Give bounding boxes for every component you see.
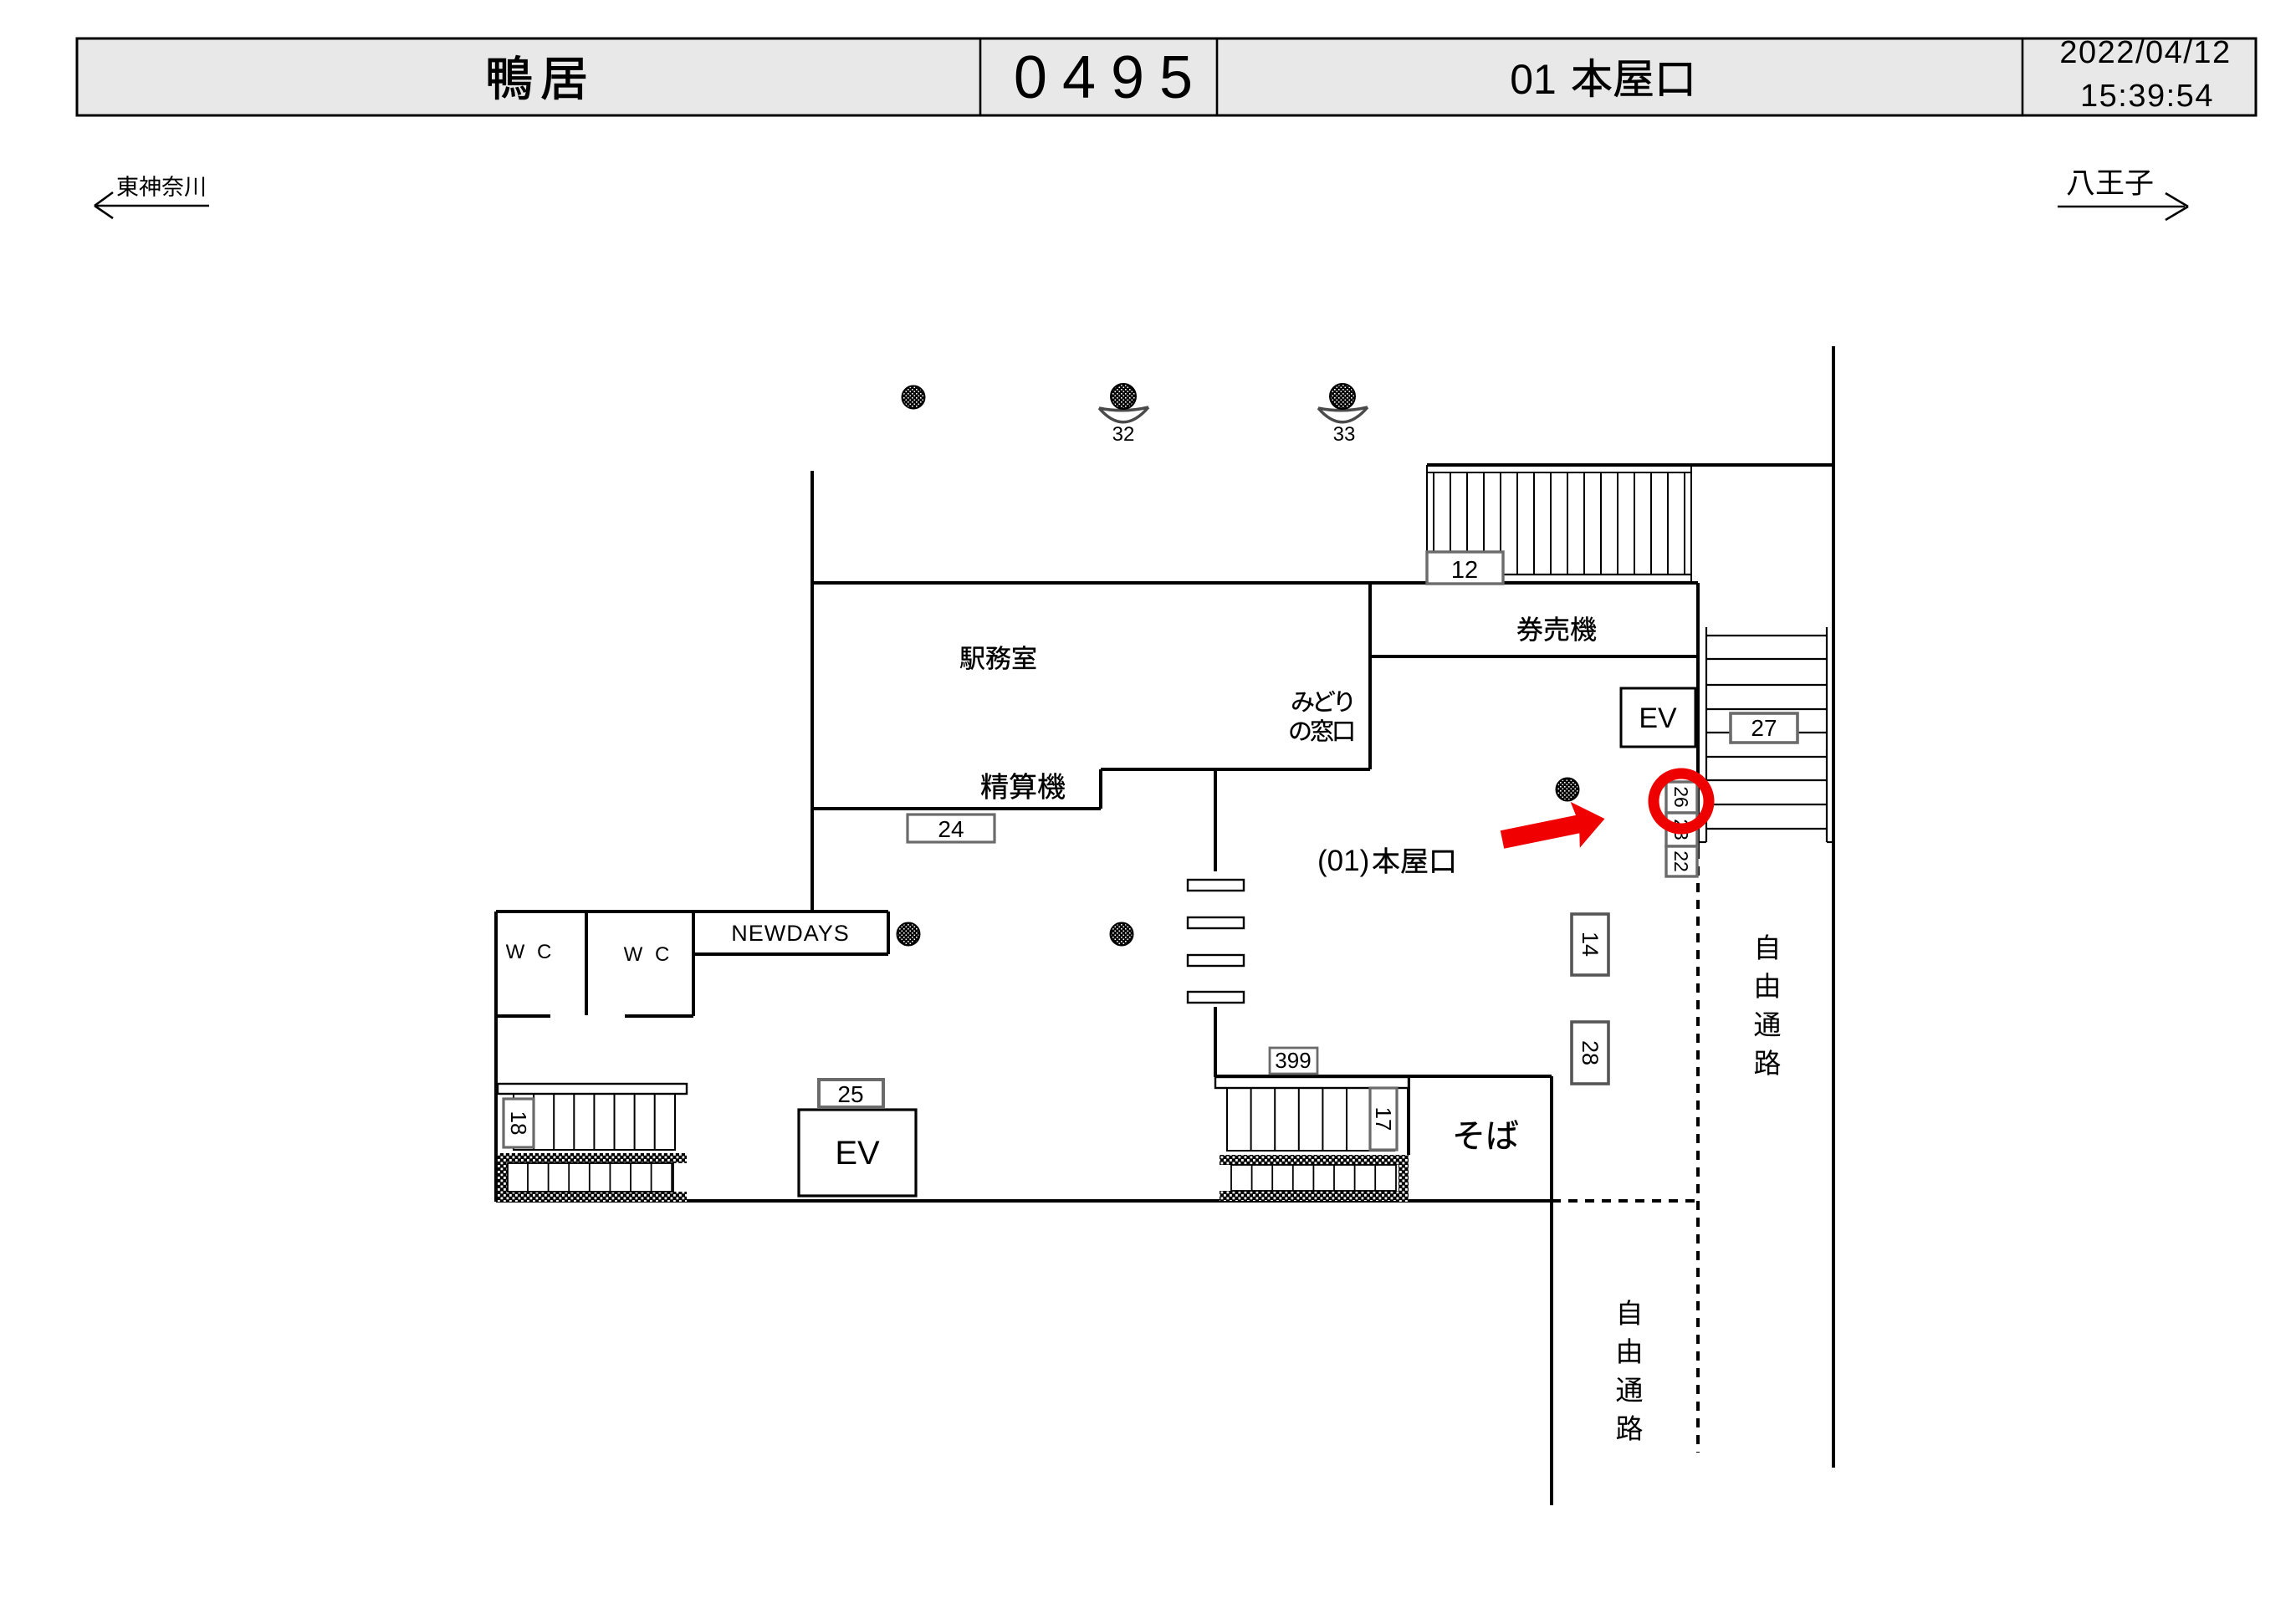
svg-text:27: 27 [1751,715,1777,741]
svg-text:(01): (01) [1317,845,1369,877]
svg-text:24: 24 [938,816,964,842]
svg-text:14: 14 [1578,932,1603,957]
svg-text:01: 01 [1510,56,1557,103]
svg-text:NEWDAYS: NEWDAYS [731,921,850,946]
svg-text:22: 22 [1670,850,1692,872]
svg-text:33: 33 [1333,423,1356,446]
svg-text:17: 17 [1371,1107,1396,1131]
svg-text:32: 32 [1112,423,1135,446]
svg-text:EV: EV [1639,702,1677,734]
svg-text:18: 18 [506,1111,531,1136]
svg-text:0495: 0495 [1014,44,1208,111]
svg-text:EV: EV [835,1135,880,1172]
svg-text:W C: W C [624,943,673,966]
svg-text:28: 28 [1578,1040,1603,1065]
svg-text:2022/04/12: 2022/04/12 [2059,35,2231,70]
svg-text:25: 25 [837,1081,863,1107]
svg-text:399: 399 [1275,1048,1311,1073]
svg-text:12: 12 [1451,557,1478,584]
svg-text:26: 26 [1670,786,1692,808]
svg-text:W C: W C [506,941,555,963]
svg-text:15:39:54: 15:39:54 [2080,79,2214,114]
